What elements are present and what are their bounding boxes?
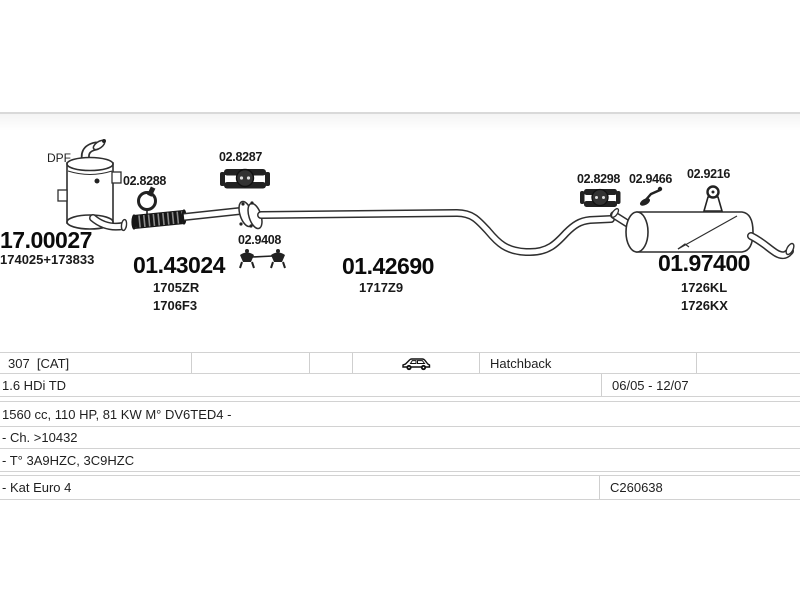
vehicle-icon-cell [353, 353, 480, 373]
table-row-model: 307 [CAT] Hatchback [0, 353, 800, 374]
part-number-centre-pipe: 01.42690 [342, 255, 434, 278]
vehicle-spec-table: 307 [CAT] Hatchback [0, 352, 800, 500]
fitting-number-02-8288: 02.8288 [123, 175, 166, 188]
hatchback-car-icon [401, 356, 431, 371]
table-row-spec: 1560 cc, 110 HP, 81 KW M° DV6TED4 - [0, 402, 800, 427]
table-row-chassis: - Ch. >10432 [0, 427, 800, 449]
fitting-number-02-8287: 02.8287 [219, 151, 262, 164]
rear-silencer [610, 208, 795, 256]
system-code-cell: C260638 [600, 476, 799, 499]
empty-cell [697, 353, 799, 373]
table-row-type-codes: - T° 3A9HZC, 3C9HZC [0, 449, 800, 472]
oe-ref-dpf: 174025+173833 [0, 253, 94, 266]
rear-clamp-icon [580, 189, 621, 207]
date-range-cell: 06/05 - 12/07 [602, 374, 799, 396]
model-name-cell: 307 [CAT] [0, 353, 192, 373]
dpf-label: DPF [47, 152, 71, 164]
type-codes-cell: - T° 3A9HZC, 3C9HZC [0, 449, 800, 471]
table-row-engine: 1.6 HDi TD 06/05 - 12/07 [0, 374, 800, 397]
hanger-pair-icon [240, 249, 285, 268]
body-type-cell: Hatchback [480, 353, 697, 373]
part-number-dpf: 17.00027 [0, 229, 92, 252]
engine-spec-cell: 1560 cc, 110 HP, 81 KW M° DV6TED4 - [0, 402, 800, 426]
rubber-mount-icon [704, 187, 722, 212]
oe-ref-front-pipe-1: 1705ZR [153, 281, 199, 294]
oe-ref-rear-silencer-2: 1726KX [681, 299, 728, 312]
fitting-number-02-9466: 02.9466 [629, 173, 672, 186]
oe-ref-front-pipe-2: 1706F3 [153, 299, 197, 312]
oe-ref-rear-silencer-1: 1726KL [681, 281, 727, 294]
table-row-emission: - Kat Euro 4 C260638 [0, 476, 800, 500]
hook-hanger-icon [639, 187, 662, 207]
engine-name-cell: 1.6 HDi TD [0, 374, 602, 396]
empty-cell [310, 353, 353, 373]
part-number-rear-silencer: 01.97400 [658, 252, 750, 275]
emission-cell: - Kat Euro 4 [0, 476, 600, 499]
part-number-front-pipe: 01.43024 [133, 254, 225, 277]
empty-cell [192, 353, 310, 373]
ring-clamp-icon [139, 187, 156, 215]
catalog-page: DPF 02.8288 02.8287 02.9408 02.8298 02.9… [0, 0, 800, 600]
fitting-number-02-8298: 02.8298 [577, 173, 620, 186]
wide-clamp-icon [220, 169, 270, 189]
centre-pipe [261, 213, 611, 252]
fitting-number-02-9216: 02.9216 [687, 168, 730, 181]
oe-ref-centre-pipe: 1717Z9 [359, 281, 403, 294]
chassis-cell: - Ch. >10432 [0, 427, 800, 448]
fitting-number-02-9408: 02.9408 [238, 234, 281, 247]
